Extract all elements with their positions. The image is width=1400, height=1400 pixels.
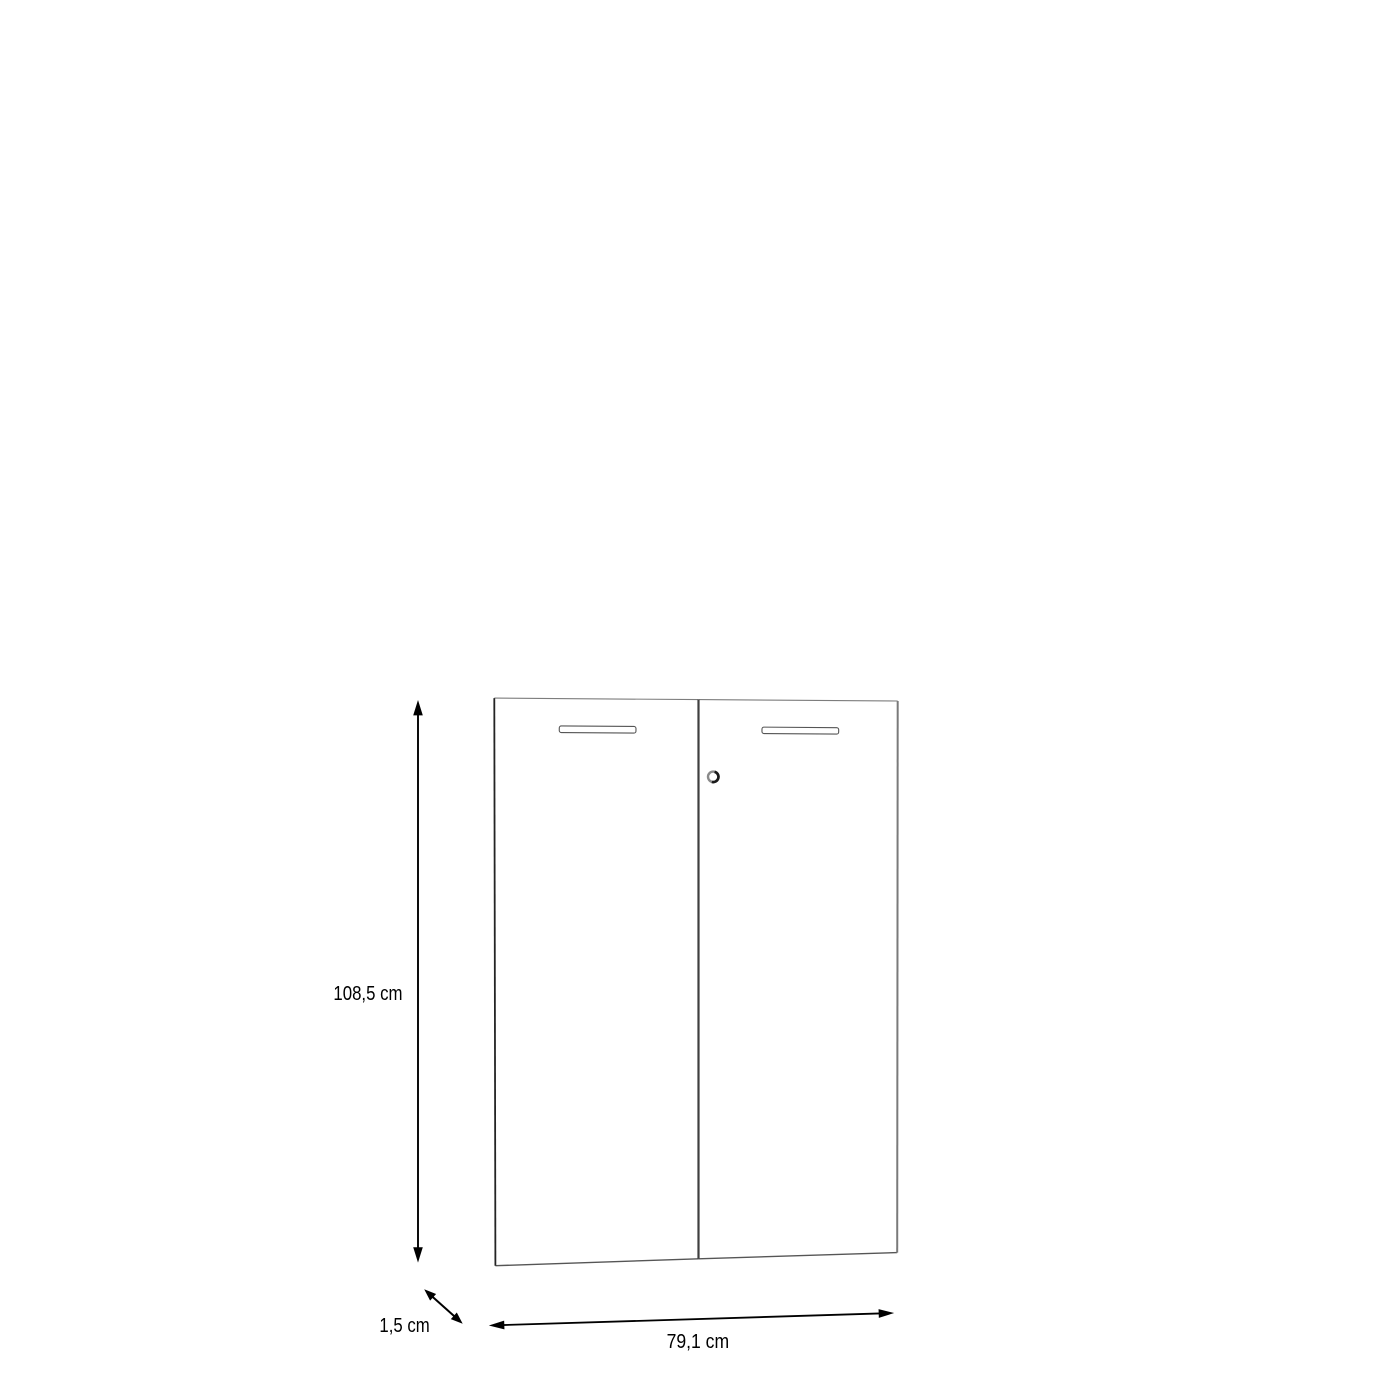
svg-text:79,1 cm: 79,1 cm	[667, 1331, 730, 1353]
svg-text:1,5 cm: 1,5 cm	[379, 1315, 429, 1337]
svg-text:108,5 cm: 108,5 cm	[333, 983, 402, 1005]
